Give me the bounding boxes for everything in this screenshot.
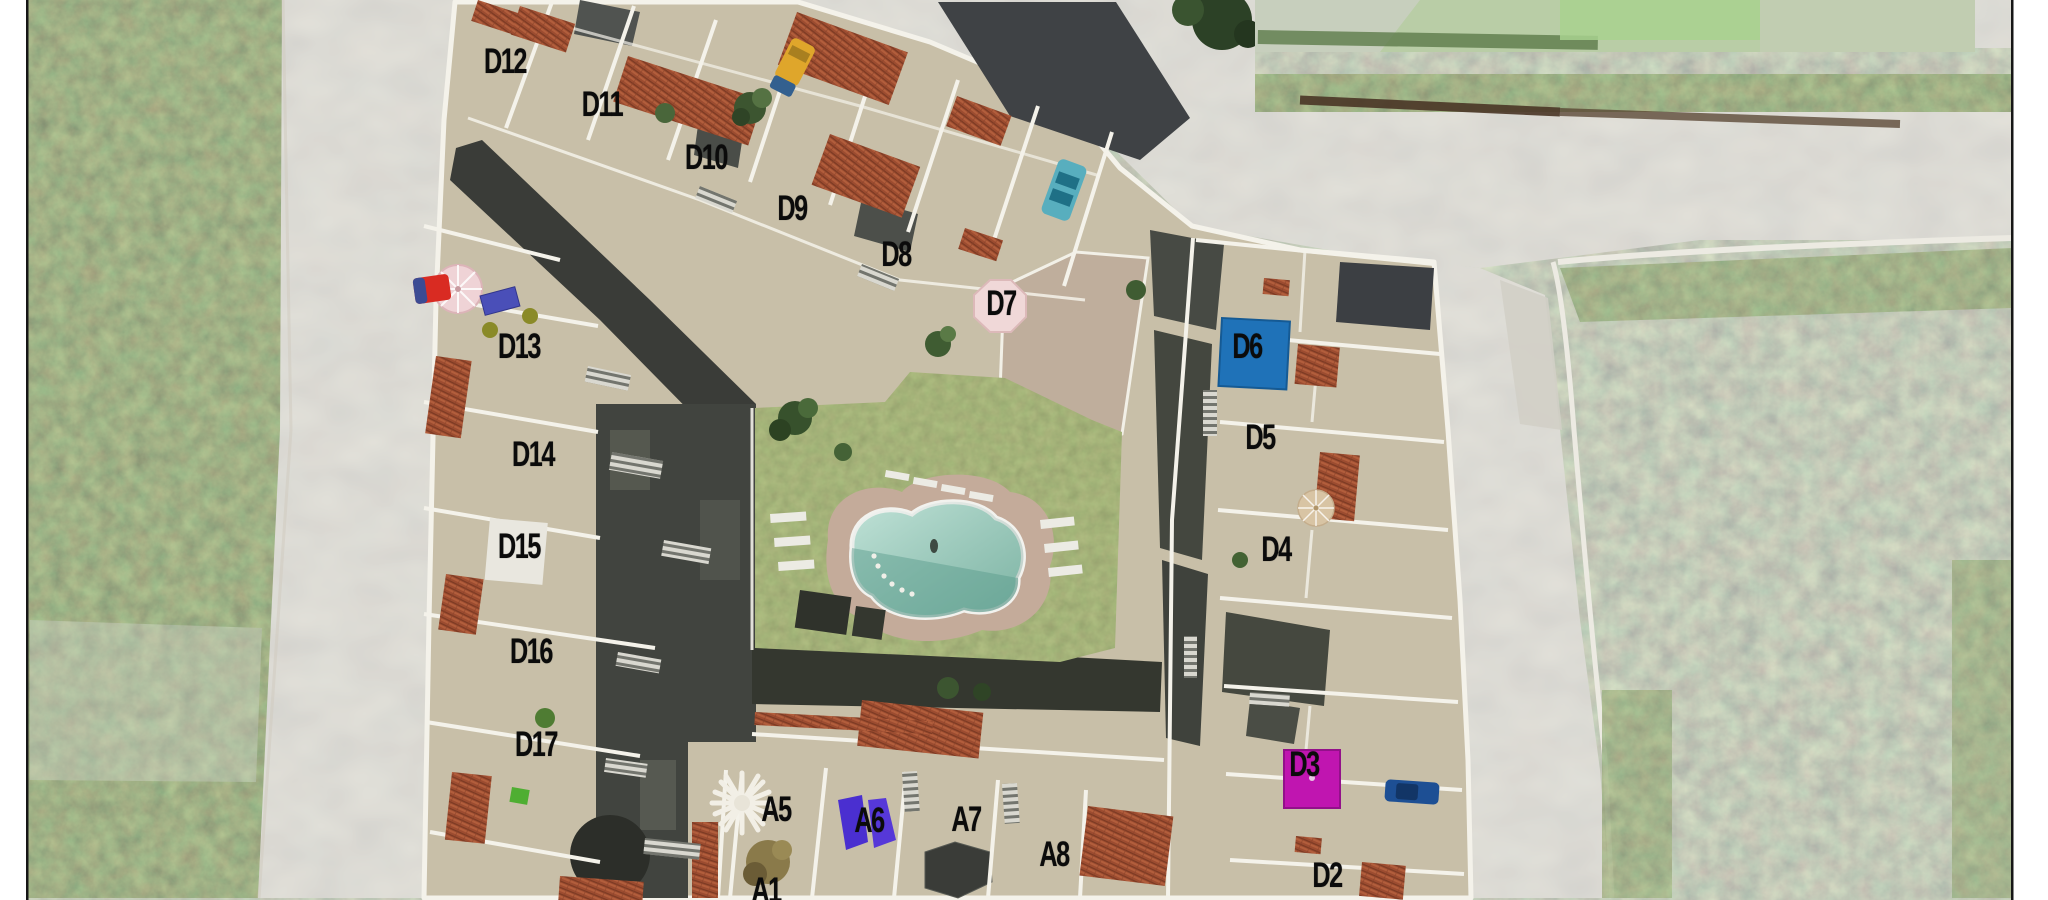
- unit-label-d11[interactable]: D11: [582, 85, 623, 125]
- unit-label-a1[interactable]: A1: [751, 871, 780, 900]
- unit-label-a6[interactable]: A6: [854, 801, 883, 841]
- unit-label-d10[interactable]: D10: [685, 138, 727, 178]
- unit-label-d6[interactable]: D6: [1232, 327, 1261, 367]
- unit-label-d15[interactable]: D15: [498, 527, 540, 567]
- unit-label-d13[interactable]: D13: [498, 327, 540, 367]
- unit-label-d8[interactable]: D8: [881, 235, 910, 275]
- unit-label-d9[interactable]: D9: [777, 189, 806, 229]
- unit-label-d2[interactable]: D2: [1312, 856, 1341, 896]
- unit-label-d5[interactable]: D5: [1245, 418, 1274, 458]
- swimmer: [930, 539, 938, 553]
- red-car: [412, 274, 451, 305]
- unit-label-d7[interactable]: D7: [986, 284, 1015, 324]
- green-table: [509, 787, 529, 805]
- unit-label-a7[interactable]: A7: [951, 800, 980, 840]
- round-table: [482, 322, 498, 338]
- inset-overlay: [1255, 0, 1975, 52]
- unit-label-d14[interactable]: D14: [512, 435, 554, 475]
- unit-label-d4[interactable]: D4: [1261, 530, 1290, 570]
- unit-label-d12[interactable]: D12: [484, 42, 526, 82]
- unit-label-a5[interactable]: A5: [761, 790, 790, 830]
- unit-label-d16[interactable]: D16: [510, 632, 552, 672]
- aerial-site-plan: [0, 0, 2048, 900]
- round-table: [522, 308, 538, 324]
- brick-chimney: [692, 822, 718, 898]
- unit-label-d17[interactable]: D17: [515, 725, 557, 765]
- tan-umbrella: [1298, 490, 1334, 526]
- site-plan-screenshot: D12D11D10D9D8D7D6D5D4D3D2D13D14D15D16D17…: [0, 0, 2048, 900]
- unit-label-a8[interactable]: A8: [1039, 835, 1068, 875]
- unit-label-d3[interactable]: D3: [1289, 745, 1318, 785]
- blue-car: [1384, 779, 1439, 805]
